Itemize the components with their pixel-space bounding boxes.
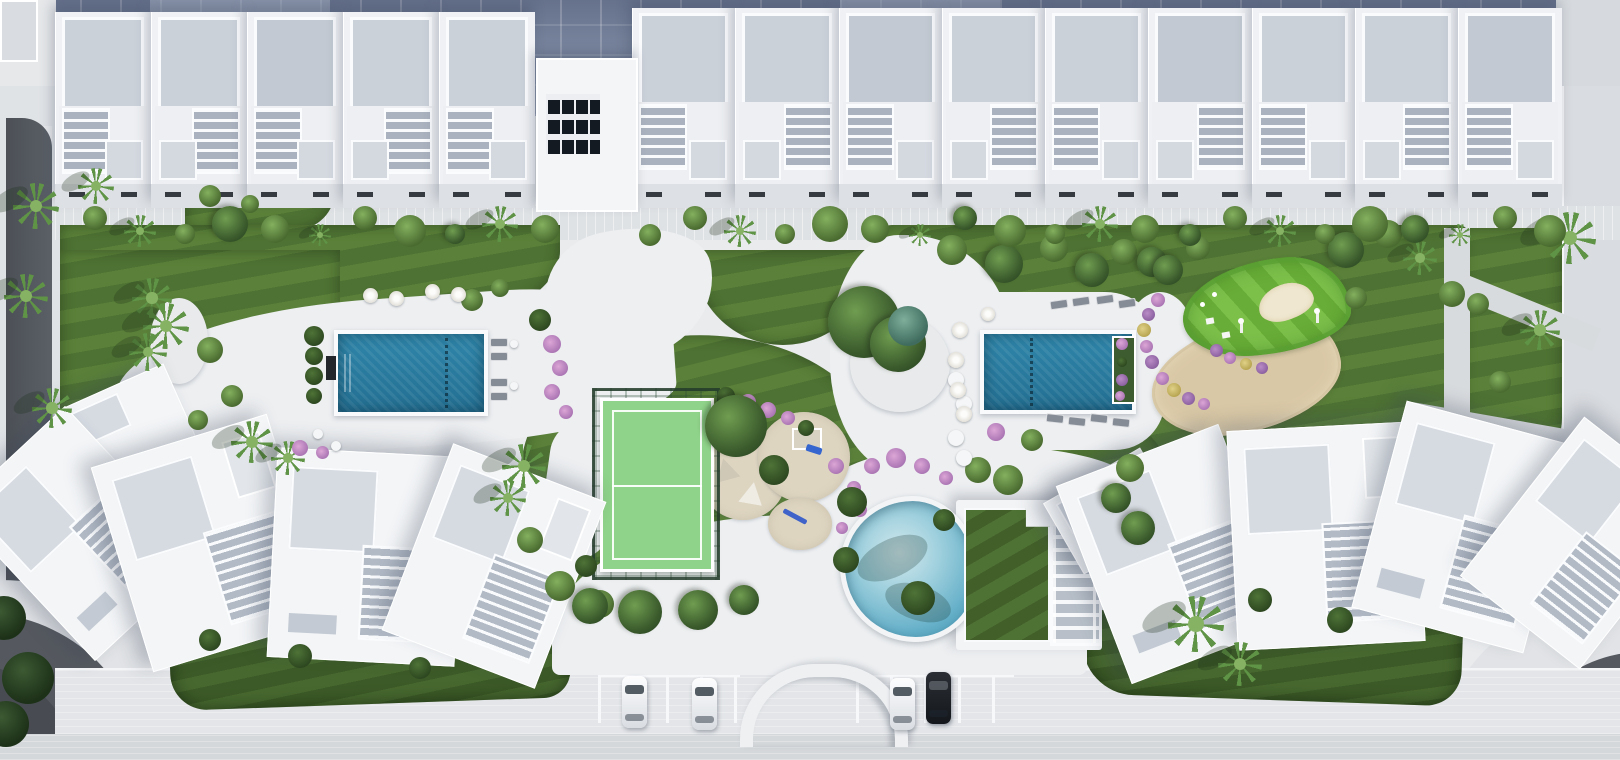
palm-tree: [1403, 241, 1437, 275]
roof-terrace: [254, 17, 336, 109]
pergola: [1465, 104, 1513, 170]
garden-pouf: [510, 340, 518, 348]
pergola: [784, 104, 832, 170]
pergola: [192, 108, 240, 174]
roof-unit: [538, 497, 592, 562]
townhouse-unit: [247, 12, 343, 208]
flower-bush: [1137, 323, 1151, 337]
bush: [175, 224, 195, 244]
bush: [199, 185, 221, 207]
dark-bush: [933, 509, 955, 531]
roof-terrace: [1155, 13, 1244, 105]
parasol: [956, 406, 972, 422]
tree: [1075, 253, 1109, 287]
pergola: [254, 108, 302, 174]
pergola: [62, 108, 110, 174]
sun-lounger: [490, 352, 508, 361]
dark-bush: [306, 388, 322, 404]
padel-court: [600, 398, 714, 572]
townhouse-unit: [439, 12, 535, 208]
flower-bush: [1145, 355, 1159, 369]
roof-terrace: [1362, 13, 1451, 105]
street-facade: [343, 184, 439, 208]
bush: [1131, 215, 1159, 243]
garden-pouf: [956, 450, 972, 466]
parasol: [451, 287, 466, 302]
townhouse-unit: [1355, 8, 1458, 208]
tree: [445, 224, 465, 244]
patio: [689, 140, 727, 180]
bush: [1223, 206, 1247, 230]
garden-pouf: [948, 430, 964, 446]
pool-steps: [344, 354, 354, 392]
street-facade: [247, 184, 343, 208]
roof-terrace: [288, 466, 378, 553]
roof-terrace: [1052, 13, 1141, 105]
bush: [1315, 224, 1335, 244]
bush: [1045, 224, 1065, 244]
flower-bush: [316, 446, 329, 459]
sun-lounger: [1090, 413, 1109, 424]
flower-bush: [886, 448, 906, 468]
bush: [1467, 293, 1489, 315]
palm-tree: [4, 274, 48, 318]
flower-bush: [939, 471, 953, 485]
townhouse-row-left: [55, 12, 535, 208]
flower-bush: [1156, 372, 1169, 385]
flower-bush: [1240, 358, 1252, 370]
dark-bush: [304, 326, 324, 346]
flower-bush: [1151, 293, 1165, 307]
townhouse-unit: [839, 8, 942, 208]
roof-terrace: [1465, 13, 1554, 105]
roof-terrace: [846, 13, 935, 105]
dark-bush: [305, 347, 323, 365]
patio: [743, 140, 781, 180]
palm-tree: [1168, 596, 1224, 652]
bush: [531, 215, 559, 243]
aerial-resort-render: [0, 0, 1620, 760]
flower-bush: [1167, 383, 1181, 397]
pool-bench: [326, 356, 336, 380]
swimming-pool-west: [334, 330, 488, 416]
sun-lounger: [1068, 416, 1087, 427]
sun-lounger: [490, 338, 508, 347]
dark-bush: [305, 367, 323, 385]
roof-terrace: [1259, 13, 1348, 105]
tree: [1401, 215, 1429, 243]
palm-tree: [1264, 215, 1296, 247]
pergola: [384, 108, 432, 174]
dark-bush: [409, 657, 431, 679]
bush: [261, 215, 289, 243]
roof-terrace: [742, 13, 831, 105]
parasol: [948, 352, 964, 368]
dark-tree: [2, 652, 54, 704]
flower-bush: [1182, 392, 1195, 405]
bush: [1352, 206, 1388, 242]
roof-terrace: [446, 17, 528, 109]
bush: [639, 224, 661, 246]
patio: [1309, 140, 1347, 180]
patio: [1516, 140, 1554, 180]
palm-tree: [909, 224, 931, 246]
garden-pouf: [510, 382, 518, 390]
flower-bush: [1256, 362, 1268, 374]
pool-lane-dots: [1030, 338, 1033, 406]
patio: [297, 140, 335, 180]
patio: [351, 140, 389, 180]
street-facade: [1458, 184, 1561, 208]
car: [622, 676, 647, 728]
dark-bush: [529, 309, 551, 331]
patio: [1363, 140, 1401, 180]
roof-terrace: [1243, 444, 1333, 535]
flower-bush: [914, 458, 930, 474]
corner-building-roof: [0, 0, 38, 62]
tree: [985, 245, 1023, 283]
tree: [1153, 255, 1183, 285]
bush: [775, 224, 795, 244]
flower-bush: [1198, 398, 1210, 410]
tree: [729, 585, 759, 615]
bush: [188, 410, 208, 430]
roof-terrace: [0, 466, 82, 574]
street-facade: [1252, 184, 1355, 208]
golf-flag: [1240, 322, 1243, 333]
top-right-corner-roof: [1556, 0, 1620, 100]
bush: [491, 279, 509, 297]
pergola: [1197, 104, 1245, 170]
patio: [896, 140, 934, 180]
golf-ball: [1212, 292, 1217, 297]
flower-bush: [552, 360, 568, 376]
palm-tree: [1082, 206, 1118, 242]
solar-panel-array: [546, 94, 600, 154]
pergola: [1259, 104, 1307, 170]
street-facade: [839, 184, 942, 208]
patio: [105, 140, 143, 180]
palm-tree: [1218, 642, 1262, 686]
palm-tree: [309, 224, 331, 246]
roof-terrace: [949, 13, 1038, 105]
palm-tree: [724, 215, 756, 247]
dark-bush: [1248, 588, 1272, 612]
palm-tree: [13, 183, 59, 229]
patio: [1156, 140, 1194, 180]
path-east-vertical: [1444, 228, 1470, 438]
bush: [993, 465, 1023, 495]
flower-bush: [1224, 352, 1236, 364]
dark-bush: [798, 420, 814, 436]
tree: [1101, 483, 1131, 513]
townhouse-unit: [1458, 8, 1561, 208]
bush: [221, 385, 243, 407]
sun-lounger: [490, 378, 508, 387]
dark-bush: [1327, 607, 1353, 633]
bush: [241, 195, 259, 213]
tree: [1179, 224, 1201, 246]
sun-lounger: [1112, 417, 1131, 428]
palm-tree: [78, 168, 114, 204]
flower-bush: [1142, 308, 1155, 321]
bush: [937, 235, 967, 265]
flower-bush: [1140, 340, 1153, 353]
flower-bush: [987, 423, 1005, 441]
tree: [1121, 511, 1155, 545]
bush: [1111, 239, 1137, 265]
roof-terrace: [62, 17, 144, 109]
pergola: [1403, 104, 1451, 170]
parking-bays-left: [598, 674, 740, 723]
street-facade: [1148, 184, 1251, 208]
dark-bush: [759, 455, 789, 485]
tree: [212, 206, 248, 242]
dark-bush: [833, 547, 859, 573]
townhouse-unit: [632, 8, 735, 208]
bush: [861, 215, 889, 243]
townhouse-unit: [735, 8, 838, 208]
street-facade: [942, 184, 1045, 208]
bush: [812, 206, 848, 242]
palm-tree: [124, 215, 156, 247]
street-facade: [1045, 184, 1148, 208]
car: [926, 672, 951, 724]
bush: [394, 215, 426, 247]
blue-tree: [888, 306, 928, 346]
tree: [572, 588, 608, 624]
dark-bush: [575, 555, 597, 577]
townhouse-unit: [1148, 8, 1251, 208]
street-facade: [735, 184, 838, 208]
golf-ball: [1200, 302, 1205, 307]
street-facade: [632, 184, 735, 208]
flower-bush: [1116, 374, 1128, 386]
townhouse-unit: [1045, 8, 1148, 208]
patio: [950, 140, 988, 180]
bush: [545, 571, 575, 601]
tree: [953, 206, 977, 230]
car: [692, 678, 717, 730]
sun-lounger: [490, 392, 508, 401]
stairs: [1376, 568, 1425, 598]
bush: [1345, 287, 1367, 309]
garden-pouf: [331, 441, 341, 451]
parasol: [952, 322, 968, 338]
parasol: [425, 284, 440, 299]
bush: [994, 215, 1026, 247]
flower-bush: [292, 440, 308, 456]
bush: [353, 206, 377, 230]
parasol: [950, 382, 966, 398]
flower-bush: [864, 458, 880, 474]
roof-terrace: [1395, 422, 1496, 525]
tree: [705, 395, 767, 457]
bush: [1021, 429, 1043, 451]
flower-bush: [543, 335, 561, 353]
flower-bush: [836, 522, 848, 534]
tree: [618, 590, 662, 634]
townhouse-unit: [942, 8, 1045, 208]
palm-tree: [129, 333, 167, 371]
roof-terrace: [158, 17, 240, 109]
palm-tree: [1520, 310, 1560, 350]
bush: [1439, 281, 1465, 307]
tree: [678, 590, 718, 630]
townhouse-row-right: [632, 8, 1562, 208]
pergola: [990, 104, 1038, 170]
parasol: [389, 291, 404, 306]
roof-terrace: [111, 456, 216, 561]
roof-terrace: [350, 17, 432, 109]
car: [890, 678, 915, 730]
bush: [517, 527, 543, 553]
palm-tree: [490, 480, 526, 516]
parasol: [981, 307, 995, 321]
bush: [197, 337, 223, 363]
bush: [83, 206, 107, 230]
dark-bush: [901, 581, 935, 615]
playground-circle: [768, 498, 832, 550]
palm-tree: [32, 388, 72, 428]
pergola: [446, 108, 494, 174]
townhouse-unit: [151, 12, 247, 208]
bush: [1489, 371, 1511, 393]
pergola: [846, 104, 894, 170]
bush: [1116, 454, 1144, 482]
patio: [1102, 140, 1140, 180]
sun-lounger: [1046, 413, 1065, 424]
golf-flag: [1316, 312, 1319, 323]
pergola: [1530, 531, 1620, 645]
stairs: [77, 591, 118, 631]
townhouse-unit: [343, 12, 439, 208]
palm-tree: [1449, 224, 1471, 246]
flower-bush: [1115, 391, 1125, 401]
dark-bush: [199, 629, 221, 651]
dark-bush: [288, 644, 312, 668]
flower-bush: [1116, 338, 1128, 350]
palm-tree: [482, 206, 518, 242]
flower-bush: [544, 384, 560, 400]
dark-bush: [1117, 357, 1127, 367]
pergola: [639, 104, 687, 170]
roof-terrace: [639, 13, 728, 105]
flower-bush: [828, 458, 844, 474]
parasol: [363, 288, 378, 303]
garden-pouf: [313, 429, 323, 439]
patio: [489, 140, 527, 180]
clubhouse-green-roof: [964, 508, 1050, 642]
dark-bush: [837, 487, 867, 517]
bush: [1493, 206, 1517, 230]
flower-bush: [559, 405, 573, 419]
patio: [159, 140, 197, 180]
bush: [1534, 215, 1566, 247]
street-facade: [439, 184, 535, 208]
bush: [683, 206, 707, 230]
street-facade: [1355, 184, 1458, 208]
pergola: [1052, 104, 1100, 170]
pool-lane-dots: [445, 338, 448, 408]
flower-bush: [1210, 344, 1223, 357]
townhouse-unit: [1252, 8, 1355, 208]
pergola: [462, 553, 562, 664]
flower-bush: [781, 411, 795, 425]
stairs: [288, 613, 337, 634]
